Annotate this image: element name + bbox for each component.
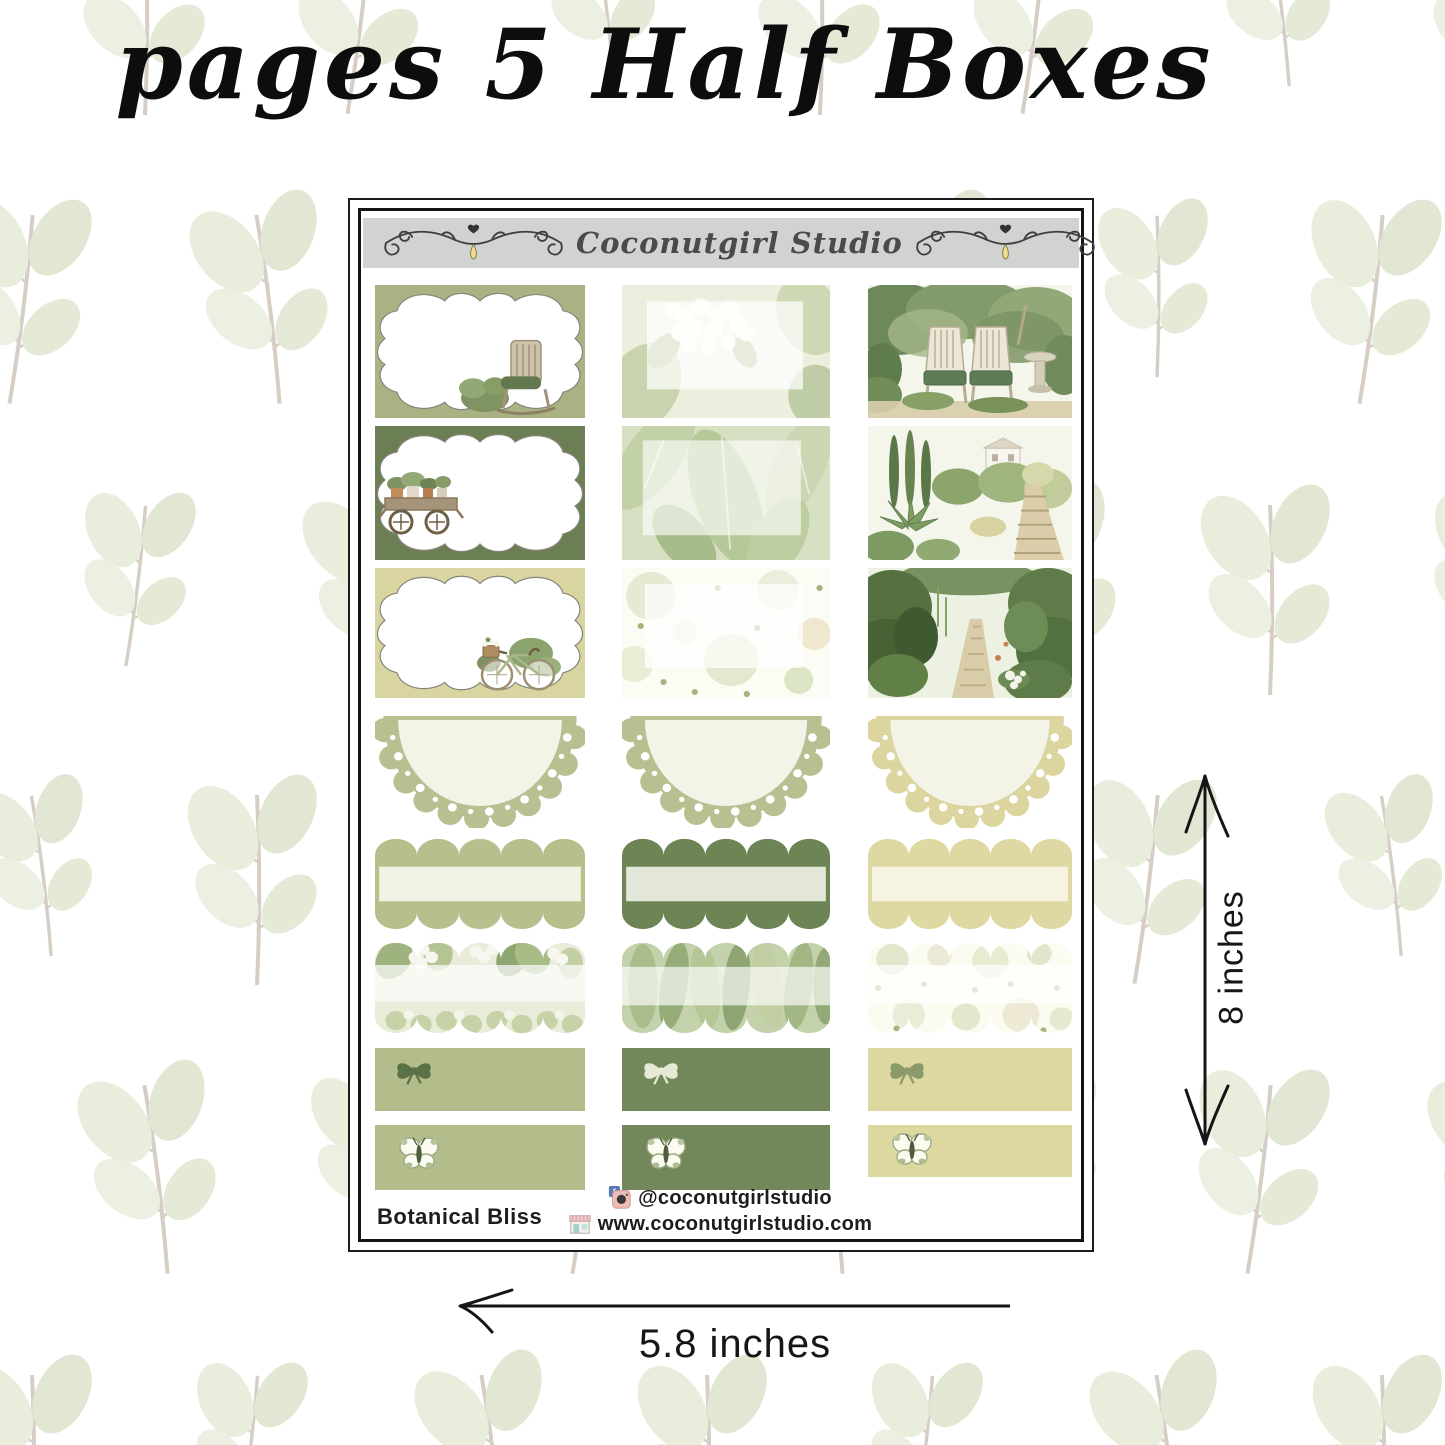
- sticker-bow-strip-khaki: [868, 1048, 1072, 1111]
- sticker-butterfly-strip-olive: [622, 1125, 830, 1190]
- height-dimension-label: 8 inches: [1213, 868, 1252, 1048]
- page-title: pages 5 Half Boxes: [40, 8, 1290, 121]
- sticker-doily-khaki: [868, 708, 1072, 828]
- sticker-bow-strip-olive: [622, 1048, 830, 1111]
- website-url: www.coconutgirlstudio.com: [598, 1213, 873, 1236]
- sticker-doily-sage-2: [622, 708, 830, 828]
- brand-name: Coconutgirl Studio: [576, 226, 903, 260]
- sticker-scallop-box-khaki: [868, 836, 1072, 932]
- sticker-half-box-agave-path: [868, 426, 1072, 560]
- sticker-half-box-hydrangea: [622, 285, 830, 418]
- width-dimension-label: 5.8 inches: [450, 1322, 1020, 1367]
- sticker-sheet: Coconutgirl Studio: [348, 198, 1094, 1252]
- bow-icon: [888, 1055, 926, 1087]
- sticker-half-box-frame-sage: [375, 285, 585, 418]
- product-image: pages 5 Half Boxes Coconutgirl Studio: [0, 0, 1445, 1445]
- bow-icon: [642, 1055, 680, 1087]
- butterfly-icon: [646, 1135, 686, 1171]
- sticker-doily-sage-1: [375, 708, 585, 828]
- instagram-line: f @coconutgirlstudio: [520, 1186, 920, 1210]
- sticker-half-box-dots: [622, 568, 830, 698]
- sticker-half-box-sage-leaves: [622, 426, 830, 560]
- sticker-butterfly-strip-khaki: [868, 1125, 1072, 1177]
- sticker-scallop-floral: [375, 940, 585, 1036]
- butterfly-icon: [399, 1135, 439, 1171]
- instagram-handle: @coconutgirlstudio: [638, 1187, 832, 1210]
- sticker-half-box-frame-olive: [375, 426, 585, 560]
- sheet-header-band: Coconutgirl Studio: [363, 218, 1079, 268]
- butterfly-icon: [892, 1131, 932, 1167]
- sticker-half-box-frame-khaki: [375, 568, 585, 698]
- facebook-instagram-icon: f: [608, 1186, 632, 1210]
- collection-name: Botanical Bliss: [377, 1204, 542, 1230]
- sticker-butterfly-strip-sage: [375, 1125, 585, 1190]
- sticker-scallop-box-olive: [622, 836, 830, 932]
- sticker-half-box-garden-chairs: [868, 285, 1072, 418]
- sticker-bow-strip-sage: [375, 1048, 585, 1111]
- flourish-right-icon: [903, 220, 1108, 266]
- bow-icon: [395, 1055, 433, 1087]
- sticker-scallop-dots: [868, 940, 1072, 1036]
- website-line: www.coconutgirlstudio.com: [520, 1212, 920, 1236]
- flourish-left-icon: [371, 220, 576, 266]
- sticker-scallop-box-sage: [375, 836, 585, 932]
- sticker-half-box-garden-walkway: [868, 568, 1072, 698]
- social-links: f @coconutgirlstudio www.coconutgirlstud…: [520, 1186, 920, 1236]
- shop-icon: [568, 1212, 592, 1236]
- sticker-scallop-leaves: [622, 940, 830, 1036]
